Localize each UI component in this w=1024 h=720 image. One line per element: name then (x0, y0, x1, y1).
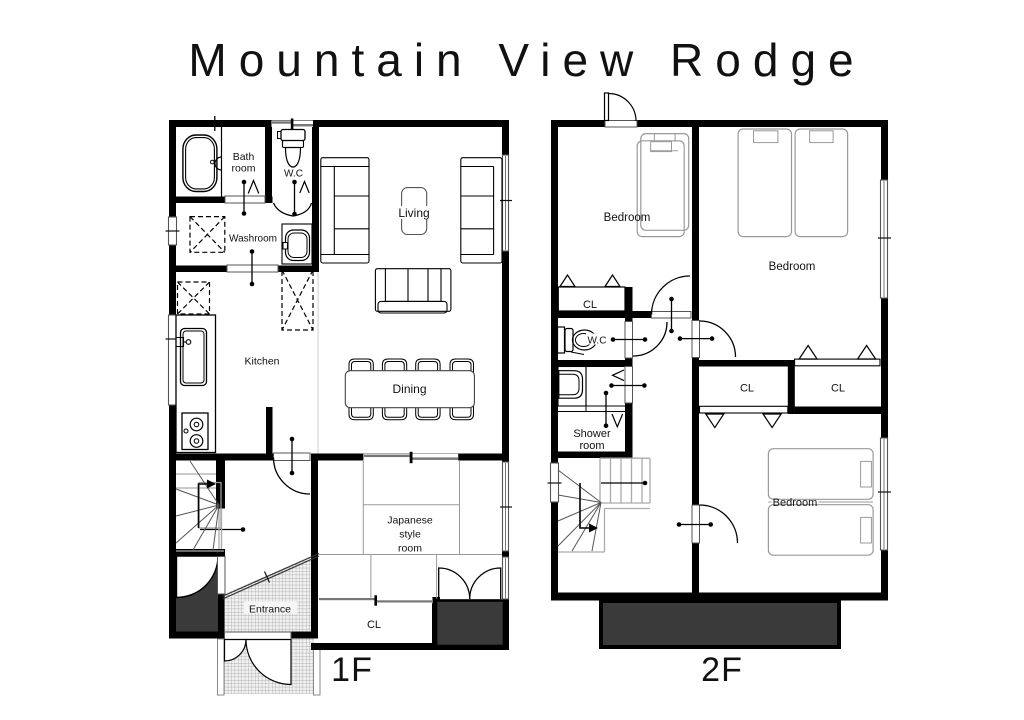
svg-text:Washroom: Washroom (229, 234, 277, 245)
svg-text:Bedroom: Bedroom (769, 261, 816, 273)
svg-text:Kitchen: Kitchen (244, 356, 279, 368)
svg-text:Bedroom: Bedroom (773, 497, 818, 509)
svg-text:room: room (579, 440, 604, 452)
svg-text:Entrance: Entrance (249, 604, 291, 616)
svg-text:CL: CL (367, 619, 381, 631)
svg-text:Bath: Bath (233, 151, 255, 163)
svg-text:style: style (399, 529, 421, 541)
svg-text:CL: CL (583, 299, 597, 311)
svg-text:CL: CL (740, 383, 754, 395)
svg-text:CL: CL (831, 383, 845, 395)
svg-text:room: room (398, 543, 422, 555)
svg-text:Living: Living (398, 206, 429, 220)
svg-text:Japanese: Japanese (387, 515, 433, 527)
svg-text:1F: 1F (331, 651, 373, 689)
svg-text:Shower: Shower (573, 428, 611, 440)
svg-text:room: room (232, 163, 256, 175)
svg-text:Bedroom: Bedroom (604, 212, 651, 224)
svg-text:W.C: W.C (588, 336, 607, 347)
svg-text:2F: 2F (701, 651, 743, 689)
svg-text:W.C: W.C (284, 169, 303, 180)
svg-text:Mountain View Rodge: Mountain View Rodge (188, 34, 865, 86)
svg-text:Dining: Dining (392, 382, 426, 396)
